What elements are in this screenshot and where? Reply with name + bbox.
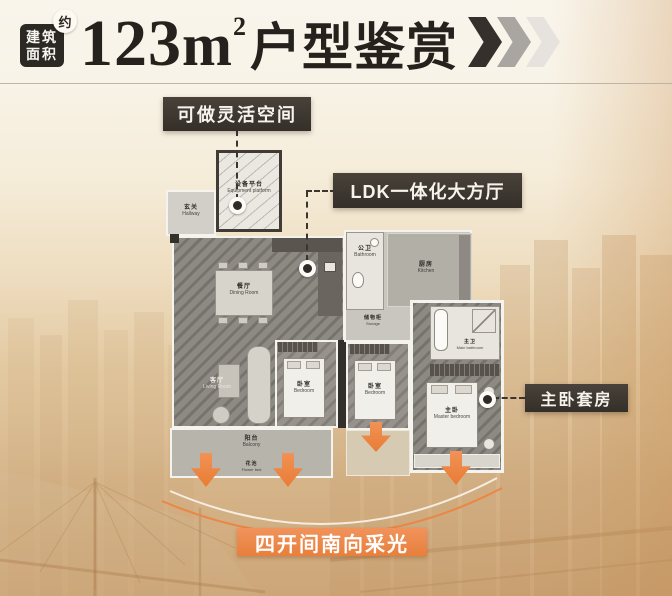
sink (370, 238, 379, 247)
callout-master-suite: 主卧套房 (525, 384, 628, 412)
leader-line (236, 130, 238, 200)
pillow (358, 363, 372, 371)
title-area-unit: m (182, 11, 232, 80)
pillow (287, 361, 301, 369)
armchair (212, 406, 230, 424)
dining-table (215, 270, 273, 316)
dining-chair (218, 317, 228, 324)
kitchen-sink (324, 262, 336, 272)
dining-chair (238, 262, 248, 269)
dining-chair (218, 262, 228, 269)
wall-pillar (170, 234, 179, 243)
chevron-right-icon (468, 17, 502, 67)
leader-line (306, 190, 336, 192)
badge-line2: 面积 (26, 46, 58, 62)
leader-line (493, 397, 525, 399)
chevron-right-icon (526, 17, 560, 67)
callout-dot (299, 260, 316, 277)
toilet (352, 272, 364, 288)
dining-chair (258, 262, 268, 269)
sofa (247, 346, 271, 424)
wall (338, 340, 346, 428)
callout-ldk: LDK一体化大方厅 (333, 173, 522, 208)
pillow (377, 363, 391, 371)
room-hallway (166, 190, 216, 236)
header: 建筑 面积 约 123 m 2 户型鉴赏 (0, 0, 672, 84)
callout-flexible-space: 可做灵活空间 (163, 97, 311, 131)
shower (472, 309, 496, 333)
title-area-number: 123 (80, 6, 182, 82)
callout-dot (229, 197, 246, 214)
title-text: 户型鉴赏 (250, 6, 458, 80)
approx-circle-badge: 约 (53, 9, 77, 33)
title-area-sup: 2 (233, 12, 246, 42)
kitchen-appliance-strip (459, 235, 470, 305)
poster: 建筑 面积 约 123 m 2 户型鉴赏 设备平台 Equipment plat… (0, 0, 672, 596)
dining-chair (238, 317, 248, 324)
pillow (455, 385, 472, 394)
callout-dot (479, 391, 496, 408)
wardrobe (350, 344, 390, 354)
wardrobe (430, 364, 500, 376)
chevron-right-icon (497, 17, 531, 67)
leader-line (306, 191, 308, 261)
south-light-banner: 四开间南向采光 (237, 528, 427, 556)
coffee-table (218, 364, 240, 398)
nightstand (483, 438, 495, 450)
wardrobe (278, 342, 318, 352)
pillow (431, 385, 448, 394)
dining-chair (258, 317, 268, 324)
room-equipment-platform (216, 150, 282, 232)
page-title: 123 m 2 户型鉴赏 (80, 6, 458, 80)
pillow (306, 361, 320, 369)
bathtub (434, 309, 448, 351)
badge-line1: 建筑 (26, 29, 58, 45)
